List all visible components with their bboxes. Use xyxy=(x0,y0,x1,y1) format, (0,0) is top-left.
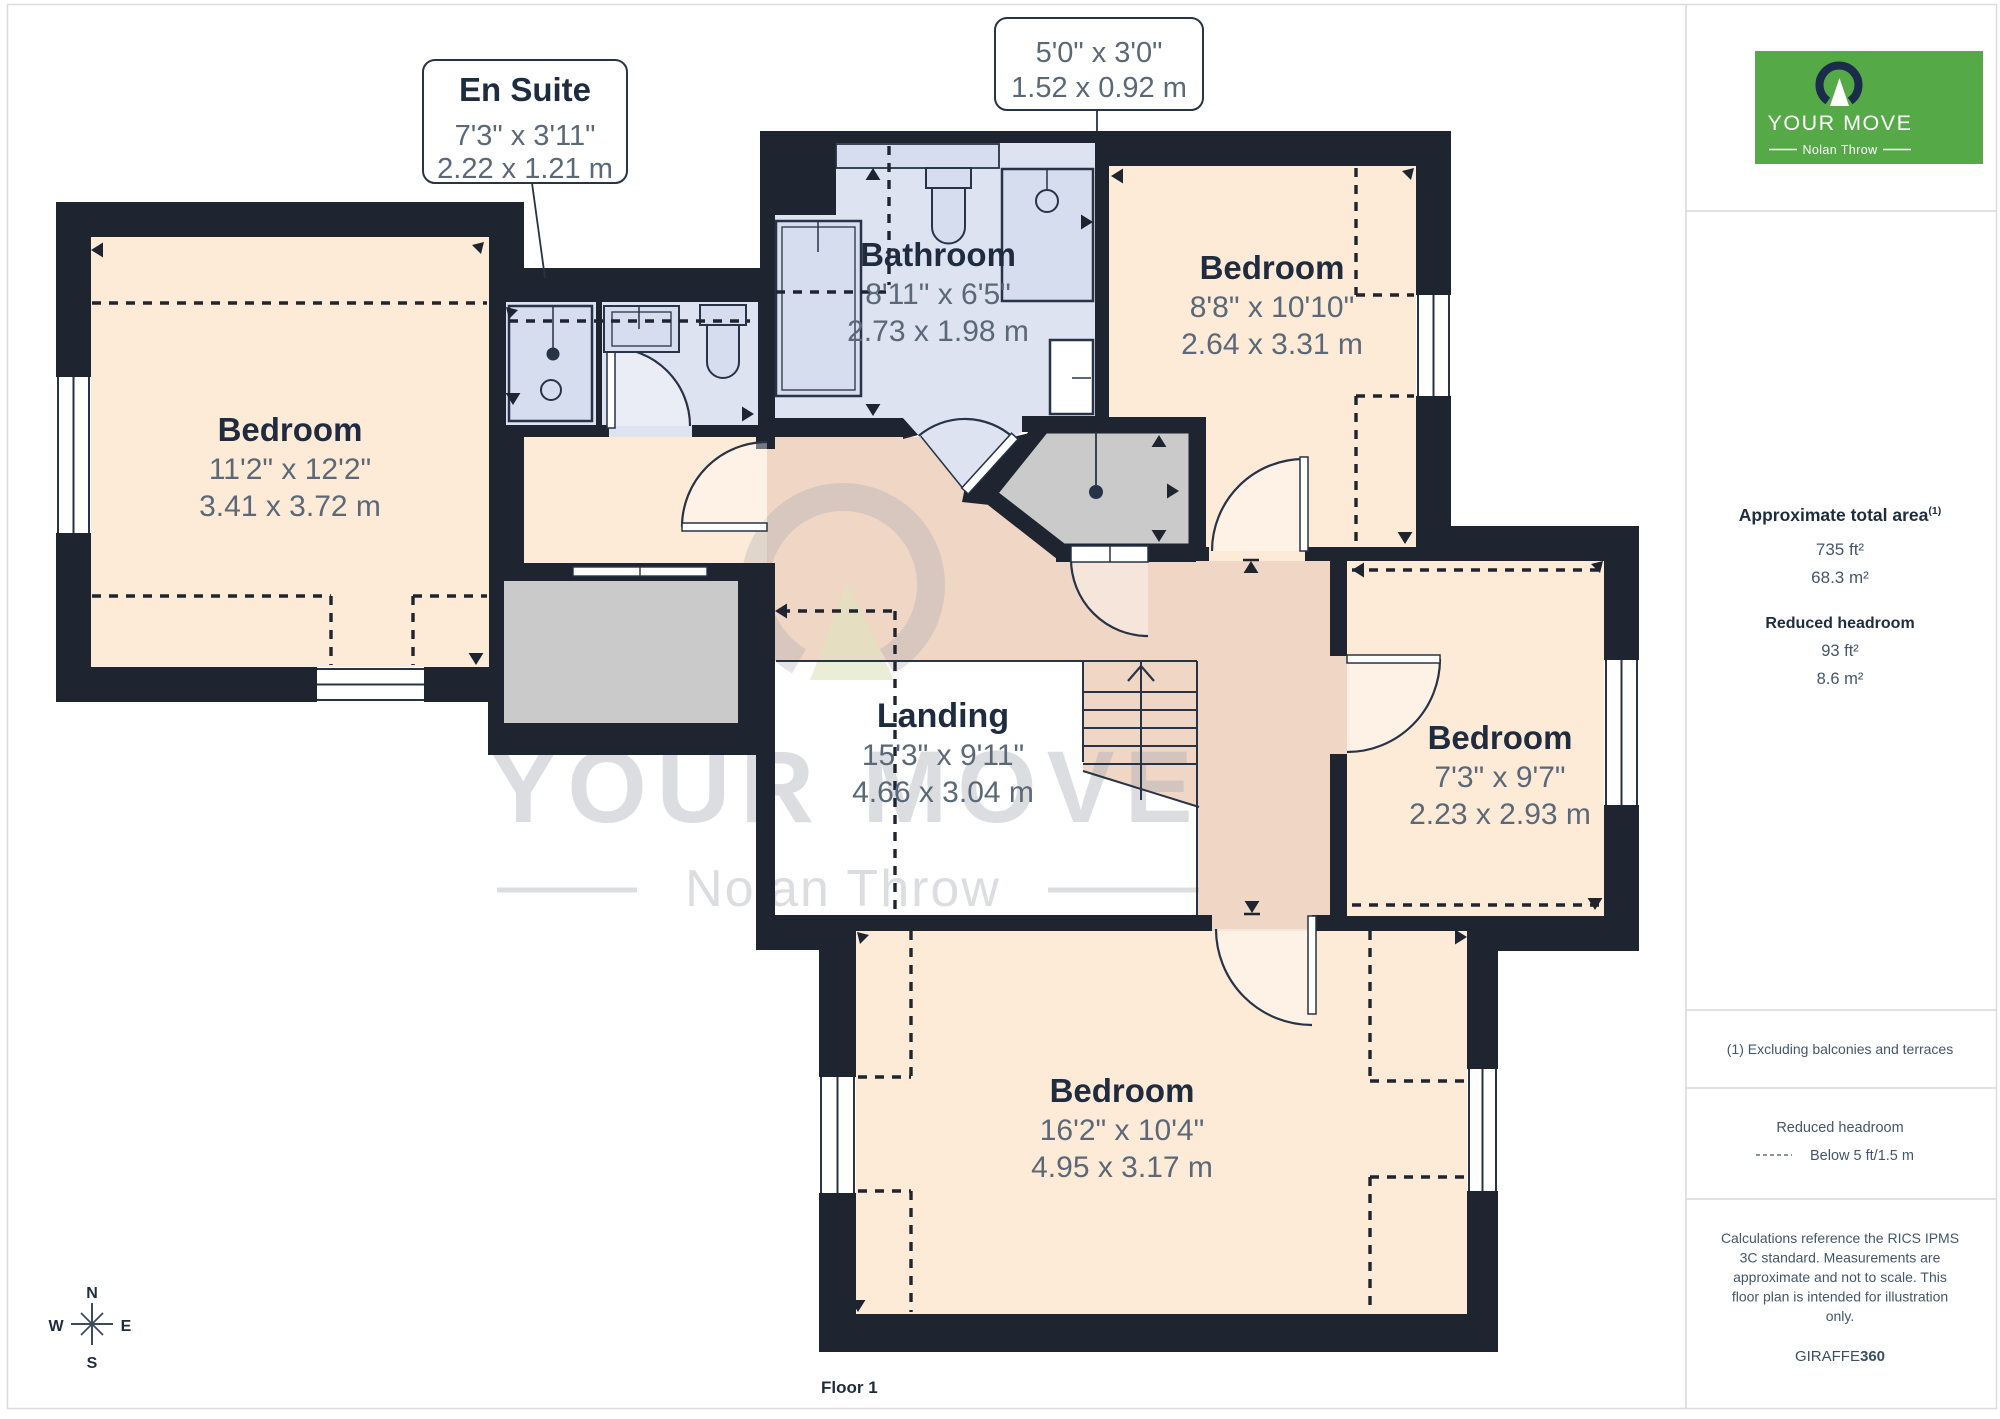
svg-text:Landing: Landing xyxy=(877,697,1009,735)
svg-text:Below 5 ft/1.5 m: Below 5 ft/1.5 m xyxy=(1810,1148,1914,1164)
svg-text:16'2" x 10'4": 16'2" x 10'4" xyxy=(1040,1114,1205,1147)
svg-text:7'3" x 9'7": 7'3" x 9'7" xyxy=(1434,761,1565,794)
svg-text:3C standard. Measurements are: 3C standard. Measurements are xyxy=(1740,1250,1941,1266)
svg-text:2.73 x 1.98 m: 2.73 x 1.98 m xyxy=(847,315,1029,348)
svg-text:Bathroom: Bathroom xyxy=(860,236,1016,273)
svg-text:3.41 x 3.72 m: 3.41 x 3.72 m xyxy=(199,490,381,523)
svg-text:4.66 x 3.04 m: 4.66 x 3.04 m xyxy=(852,776,1034,809)
svg-text:floor plan is intended for ill: floor plan is intended for illustration xyxy=(1732,1289,1948,1305)
svg-text:only.: only. xyxy=(1826,1308,1855,1324)
svg-text:68.3 m²: 68.3 m² xyxy=(1811,568,1869,587)
svg-text:Bedroom: Bedroom xyxy=(1200,249,1345,286)
svg-text:Bedroom: Bedroom xyxy=(1428,719,1573,756)
svg-text:GIRAFFE360: GIRAFFE360 xyxy=(1795,1348,1885,1365)
svg-text:8.6 m²: 8.6 m² xyxy=(1817,670,1864,688)
svg-text:Reduced headroom: Reduced headroom xyxy=(1765,615,1914,632)
svg-text:S: S xyxy=(87,1355,98,1372)
svg-text:8'8" x 10'10": 8'8" x 10'10" xyxy=(1190,291,1355,324)
svg-text:(1) Excluding balconies and te: (1) Excluding balconies and terraces xyxy=(1727,1041,1953,1057)
svg-text:Bedroom: Bedroom xyxy=(1050,1072,1195,1109)
svg-text:approximate and not to scale.: approximate and not to scale. This xyxy=(1733,1269,1947,1285)
svg-text:N: N xyxy=(86,1285,98,1302)
svg-text:E: E xyxy=(121,1318,132,1335)
svg-text:2.22 x 1.21 m: 2.22 x 1.21 m xyxy=(437,153,613,185)
svg-text:7'3" x 3'11": 7'3" x 3'11" xyxy=(455,120,596,152)
svg-text:5'0" x 3'0": 5'0" x 3'0" xyxy=(1036,37,1163,69)
svg-text:Bedroom: Bedroom xyxy=(218,411,363,448)
svg-text:2.23 x 2.93 m: 2.23 x 2.93 m xyxy=(1409,798,1591,831)
svg-text:Nolan Throw: Nolan Throw xyxy=(685,860,1001,918)
svg-text:Nolan Throw: Nolan Throw xyxy=(1802,143,1878,157)
svg-text:YOUR MOVE: YOUR MOVE xyxy=(1768,111,1913,135)
svg-text:Floor 1: Floor 1 xyxy=(821,1378,878,1397)
svg-text:Approximate total area(1): Approximate total area(1) xyxy=(1739,505,1941,525)
svg-text:2.64 x 3.31 m: 2.64 x 3.31 m xyxy=(1181,328,1363,361)
svg-text:4.95 x 3.17 m: 4.95 x 3.17 m xyxy=(1031,1151,1213,1184)
svg-text:735 ft²: 735 ft² xyxy=(1816,540,1865,559)
svg-text:8'11" x 6'5": 8'11" x 6'5" xyxy=(865,278,1011,311)
svg-text:W: W xyxy=(48,1318,64,1335)
svg-text:93 ft²: 93 ft² xyxy=(1821,642,1859,660)
svg-text:1.52 x 0.92 m: 1.52 x 0.92 m xyxy=(1011,72,1187,104)
svg-text:15'3" x 9'11": 15'3" x 9'11" xyxy=(862,739,1024,772)
svg-text:11'2" x 12'2": 11'2" x 12'2" xyxy=(209,453,371,486)
svg-text:Calculations reference the RIC: Calculations reference the RICS IPMS xyxy=(1721,1230,1959,1246)
svg-text:Reduced headroom: Reduced headroom xyxy=(1776,1120,1903,1136)
svg-text:En Suite: En Suite xyxy=(459,71,591,108)
